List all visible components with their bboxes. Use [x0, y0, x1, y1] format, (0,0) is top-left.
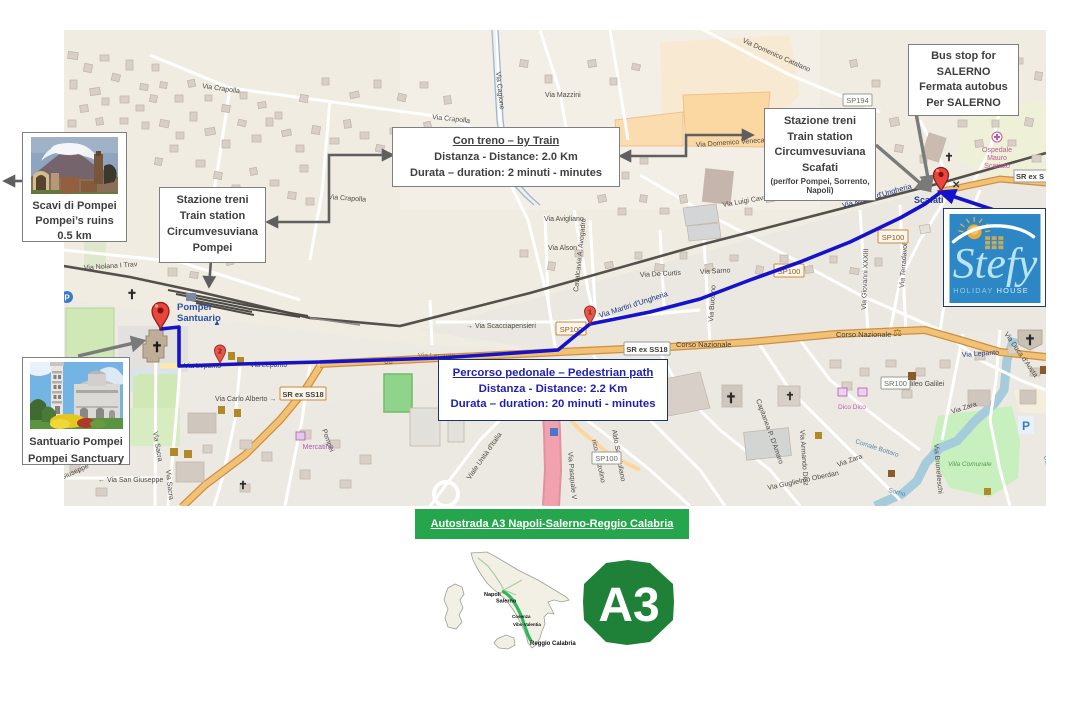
svg-text:→ Via Scacciapensieri: → Via Scacciapensieri — [466, 323, 536, 330]
svg-text:Villa Comunale: Villa Comunale — [948, 461, 992, 468]
svg-text:2: 2 — [218, 349, 222, 356]
svg-text:✝: ✝ — [151, 339, 163, 355]
svg-text:P: P — [64, 294, 70, 303]
svg-text:Vibo Valentia: Vibo Valentia — [513, 622, 541, 627]
svg-text:Viale Un: Viale Un — [324, 508, 333, 535]
svg-text:SR ex S: SR ex S — [1016, 172, 1044, 181]
svg-text:✝: ✝ — [725, 390, 737, 406]
svg-text:Stefy: Stefy — [953, 239, 1038, 287]
svg-text:1: 1 — [588, 310, 592, 317]
svg-text:Corso Nazionale: Corso Nazionale — [836, 330, 891, 339]
svg-text:SP100: SP100 — [595, 454, 618, 463]
svg-text:▲: ▲ — [213, 318, 221, 327]
svg-text:✝: ✝ — [944, 152, 953, 164]
svg-text:Reggio Calabria: Reggio Calabria — [530, 641, 576, 647]
svg-text:✝: ✝ — [127, 287, 138, 302]
svg-text:Pompei: Pompei — [177, 302, 211, 313]
svg-text:Napoli: Napoli — [484, 592, 501, 598]
svg-text:⚖: ⚖ — [893, 328, 902, 339]
svg-text:HOLIDAY HOUSE: HOLIDAY HOUSE — [953, 286, 1029, 295]
svg-text:SR100: SR100 — [884, 379, 907, 388]
svg-text:Mauro: Mauro — [987, 155, 1007, 162]
svg-text:Via Alson: Via Alson — [548, 245, 577, 252]
svg-text:Corso Nazionale: Corso Nazionale — [676, 340, 731, 349]
svg-text:✝: ✝ — [238, 480, 247, 492]
svg-text:Via Avigliano: Via Avigliano — [544, 216, 584, 223]
svg-text:← Via San Giuseppe: ← Via San Giuseppe — [98, 477, 163, 484]
svg-text:SR ex SS18: SR ex SS18 — [282, 390, 323, 399]
svg-text:Salerno: Salerno — [496, 599, 517, 605]
svg-text:Scariato: Scariato — [984, 163, 1010, 170]
svg-text:Via Carlo Alberto →: Via Carlo Alberto → — [215, 396, 276, 403]
svg-text:Via Mazzini: Via Mazzini — [545, 92, 581, 99]
svg-text:A3: A3 — [598, 579, 659, 632]
svg-text:Mercatino: Mercatino — [303, 444, 334, 451]
svg-text:✝: ✝ — [785, 391, 794, 403]
svg-text:SR ex SS18: SR ex SS18 — [626, 345, 667, 354]
svg-text:Ospedale: Ospedale — [982, 147, 1012, 154]
svg-text:P: P — [1022, 419, 1030, 433]
svg-text:SP194: SP194 — [846, 96, 869, 105]
svg-text:✝: ✝ — [1024, 332, 1036, 348]
svg-text:Cosenza: Cosenza — [512, 614, 531, 619]
svg-text:SP100: SP100 — [882, 233, 905, 242]
svg-text:Dico Dico: Dico Dico — [838, 404, 866, 411]
